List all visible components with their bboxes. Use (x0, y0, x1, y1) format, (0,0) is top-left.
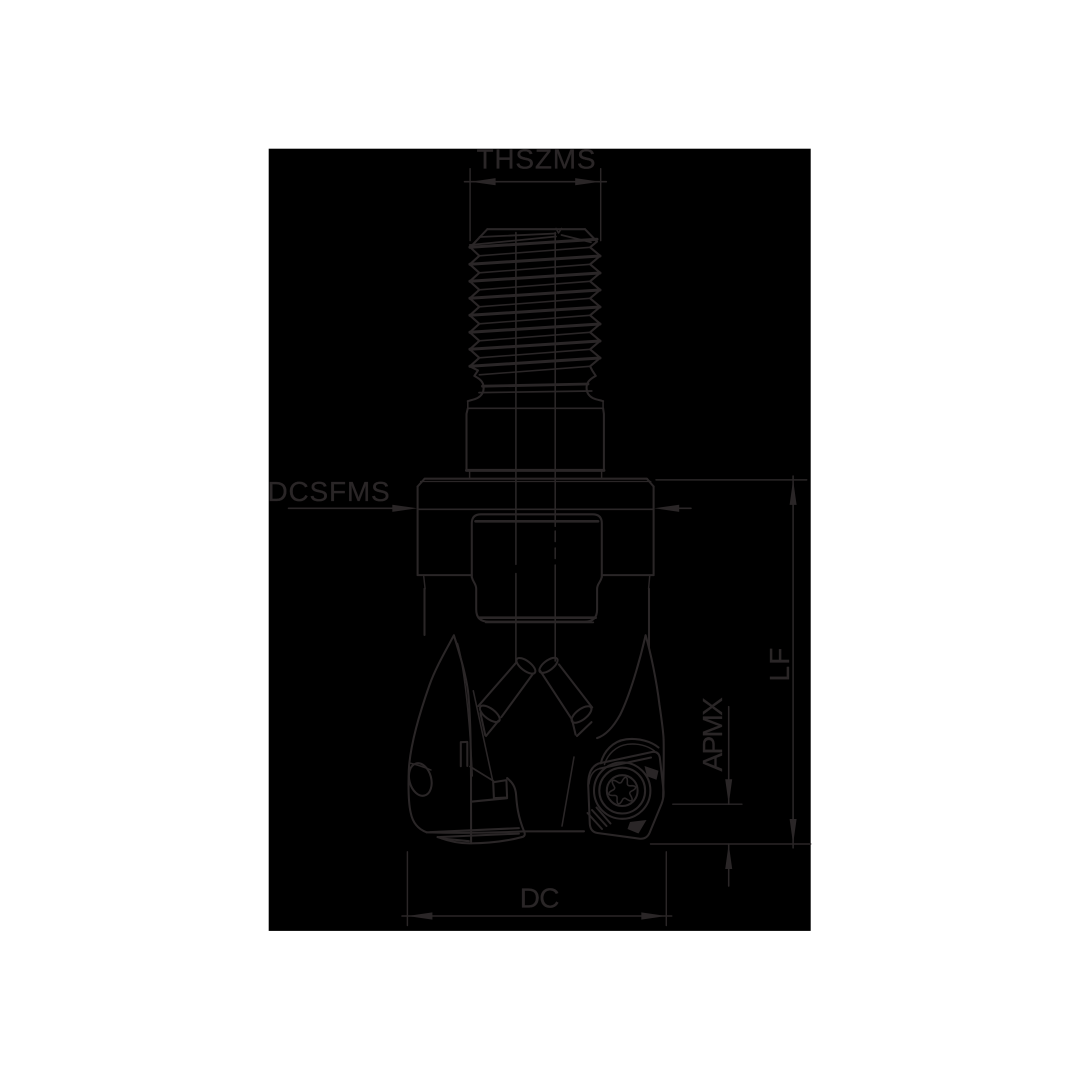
svg-text:DCSFMS: DCSFMS (268, 476, 391, 507)
svg-text:APMX: APMX (697, 697, 728, 772)
svg-text:LF: LF (764, 646, 795, 681)
svg-text:THSZMS: THSZMS (477, 143, 597, 174)
svg-text:DC: DC (520, 883, 559, 914)
